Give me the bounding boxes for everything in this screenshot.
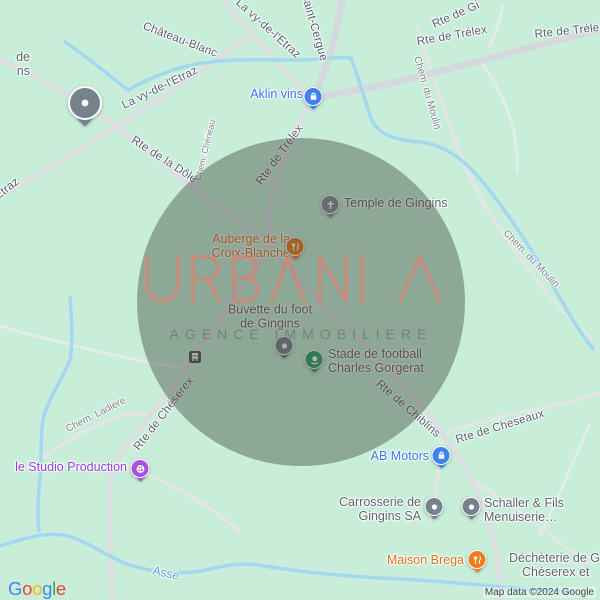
poi-label-schaller-fils[interactable]: Schaller & Fils Menuiserie… <box>484 497 564 524</box>
poi-label-carrosserie-de-gingins[interactable]: Carrosserie de Gingins SA <box>339 496 421 523</box>
poi-label-aklin-vins[interactable]: Aklin vins <box>250 88 303 102</box>
poi-label-stade-de-football[interactable]: Stade de football Charles Gorgerat <box>328 348 424 375</box>
google-logo-letter: o <box>32 578 42 599</box>
map-canvas[interactable]: Château-Blanc La vy-de-l'Etraz Saint-Cer… <box>0 0 600 600</box>
poi-pin-stade-de-football[interactable] <box>305 350 324 371</box>
poi-pin-le-studio-production[interactable] <box>131 459 150 480</box>
church-cross-icon <box>321 195 340 214</box>
art-palette-icon <box>131 459 150 478</box>
poi-label-partial-left[interactable]: de ns <box>16 51 30 78</box>
bus-stop-icon[interactable] <box>189 351 201 363</box>
generic-poi-icon <box>425 497 444 516</box>
google-logo-letter: e <box>56 578 66 599</box>
poi-pin-schaller-fils[interactable] <box>462 497 481 518</box>
shopping-bag-icon <box>432 446 451 465</box>
shopping-bag-icon <box>304 87 323 106</box>
road-minor <box>0 326 188 368</box>
poi-label-maison-brega[interactable]: Maison Brega <box>387 554 464 568</box>
poi-label-le-studio-production[interactable]: le Studio Production <box>15 461 127 475</box>
poi-pin-carrosserie-de-gingins[interactable] <box>425 497 444 518</box>
road-rte-de-chiblins <box>269 240 443 434</box>
poi-label-dechetterie[interactable]: Déchèterie de G Chéserex et <box>509 552 600 579</box>
road-minor <box>478 58 517 172</box>
poi-pin-aklin-vins[interactable] <box>304 87 323 108</box>
poi-label-buvette-du-foot[interactable]: Buvette du foot de Gingins <box>228 304 312 331</box>
stream-west <box>38 298 72 531</box>
poi-pin-temple-de-gingins[interactable] <box>321 195 340 216</box>
map-attribution: Map data ©2024 Google <box>483 587 596 598</box>
poi-label-auberge-croix-blanche[interactable]: Auberge de la Croix-Blanche <box>211 233 290 260</box>
poi-pin-maison-brega[interactable] <box>468 550 487 571</box>
sports-icon <box>305 350 324 369</box>
restaurant-icon <box>286 237 305 256</box>
google-logo-letter: o <box>22 578 32 599</box>
poi-label-temple-de-gingins[interactable]: Temple de Gingins <box>344 197 448 211</box>
poi-pin-auberge-croix-blanche[interactable] <box>286 237 305 258</box>
generic-poi-icon <box>275 336 294 355</box>
generic-poi-icon <box>68 86 102 120</box>
poi-label-ab-motors[interactable]: AB Motors <box>371 450 429 464</box>
road-minor <box>490 6 503 46</box>
road-rte-de-cheserex <box>109 240 269 600</box>
restaurant-icon <box>468 550 487 569</box>
generic-poi-icon <box>462 497 481 516</box>
google-logo-letter: g <box>42 578 52 599</box>
google-logo[interactable]: Google <box>8 578 66 600</box>
poi-pin-ab-motors[interactable] <box>432 446 451 467</box>
google-logo-letter: G <box>8 578 22 599</box>
poi-pin-buvette-du-foot[interactable] <box>275 336 294 357</box>
poi-pin-partial-left[interactable] <box>68 86 102 124</box>
road-chem-du-moulin <box>418 28 592 340</box>
